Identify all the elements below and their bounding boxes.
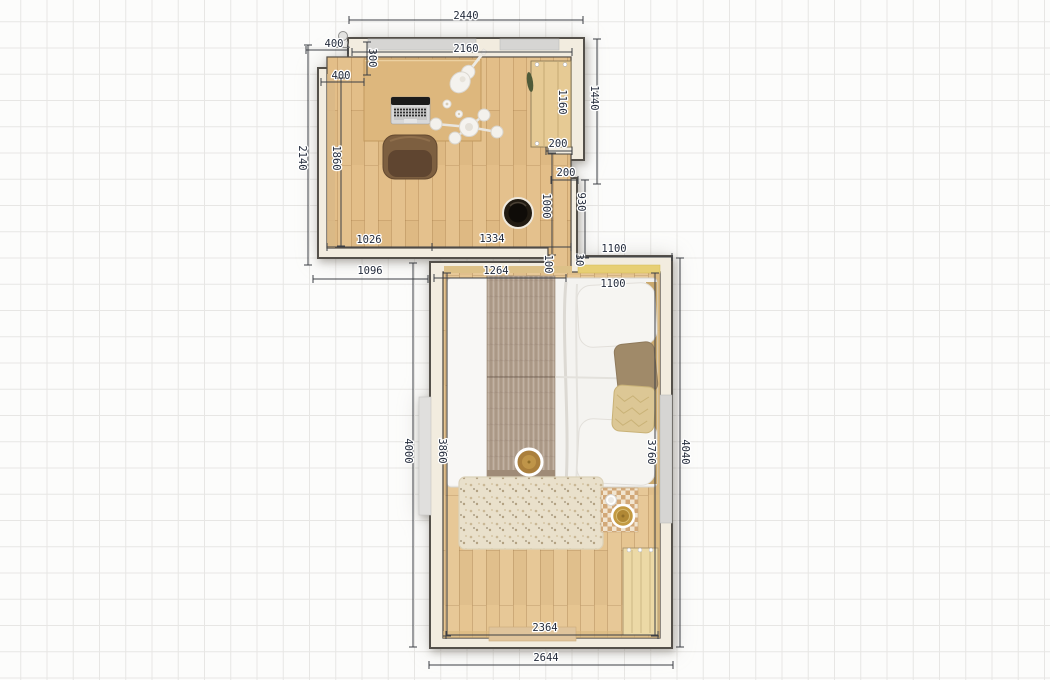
- study-window-right[interactable]: [500, 39, 559, 50]
- pillow-white-top: [576, 282, 657, 348]
- dimension: 2644: [429, 652, 673, 669]
- dimension: 100: [542, 255, 554, 274]
- laptop[interactable]: [391, 97, 430, 124]
- dimension-label: 1440: [588, 85, 600, 110]
- dimension-label: 1096: [357, 265, 382, 277]
- dimension-label: 200: [549, 138, 568, 150]
- dimension-label: 1334: [479, 233, 504, 245]
- dimension-label: 200: [557, 167, 576, 179]
- bedroom-window-left[interactable]: [419, 397, 431, 515]
- dimension: 4040: [676, 258, 691, 647]
- room-door[interactable]: [623, 548, 658, 635]
- dimension-label: 4000: [402, 438, 414, 463]
- dimension-label: 3760: [645, 439, 657, 464]
- dimension: 1160: [556, 89, 568, 114]
- pillow-chevron: [611, 385, 656, 434]
- dimension: 1100: [600, 278, 625, 290]
- bedside-mat[interactable]: [601, 488, 638, 532]
- dimension-label: 2644: [533, 652, 558, 664]
- dimension: 30: [573, 254, 585, 267]
- dimension-label: 1264: [483, 265, 508, 277]
- dimension-label: 2140: [296, 145, 308, 170]
- dimension-label: 1000: [540, 193, 552, 218]
- dimension-label: 1026: [356, 234, 381, 246]
- dimension-label: 100: [542, 255, 554, 274]
- dimension-label: 300: [366, 49, 378, 68]
- building: [318, 38, 672, 648]
- desk-chair[interactable]: [383, 135, 437, 179]
- dimension-label: 1100: [601, 243, 626, 255]
- bedroom-wall-inner-top-accent: [578, 265, 660, 273]
- round-tray-on-bed[interactable]: [516, 449, 542, 475]
- rug[interactable]: [459, 477, 603, 549]
- dimension-label: 930: [575, 193, 587, 212]
- bed-sheet-fold: [448, 280, 490, 485]
- stool[interactable]: [503, 198, 533, 228]
- dimension: 2140: [296, 45, 312, 265]
- dimension: 4000: [402, 263, 417, 647]
- dimension-label: 1100: [600, 278, 625, 290]
- plan-canvas[interactable]: 2440400300216040014401160214018602002009…: [0, 0, 1050, 680]
- dimension-label: 2440: [453, 10, 478, 22]
- dimension-label: 3860: [436, 438, 448, 463]
- dimension: 2440: [349, 10, 583, 24]
- dimension: 1440: [588, 39, 601, 184]
- dimension-label: 4040: [679, 439, 691, 464]
- dimension: 400: [306, 38, 348, 54]
- dimension-label: 30: [573, 254, 585, 267]
- bedroom-window-right[interactable]: [660, 395, 672, 523]
- dimension-label: 2364: [532, 622, 557, 634]
- double-bed[interactable]: [447, 276, 659, 487]
- dimension-label: 1860: [330, 145, 342, 170]
- dimension-label: 1160: [556, 89, 568, 114]
- dimension-label: 400: [325, 38, 344, 50]
- floorplan-svg: 2440400300216040014401160214018602002009…: [0, 0, 1050, 680]
- dimension-label: 2160: [453, 43, 478, 55]
- dimension: 1096: [313, 265, 428, 283]
